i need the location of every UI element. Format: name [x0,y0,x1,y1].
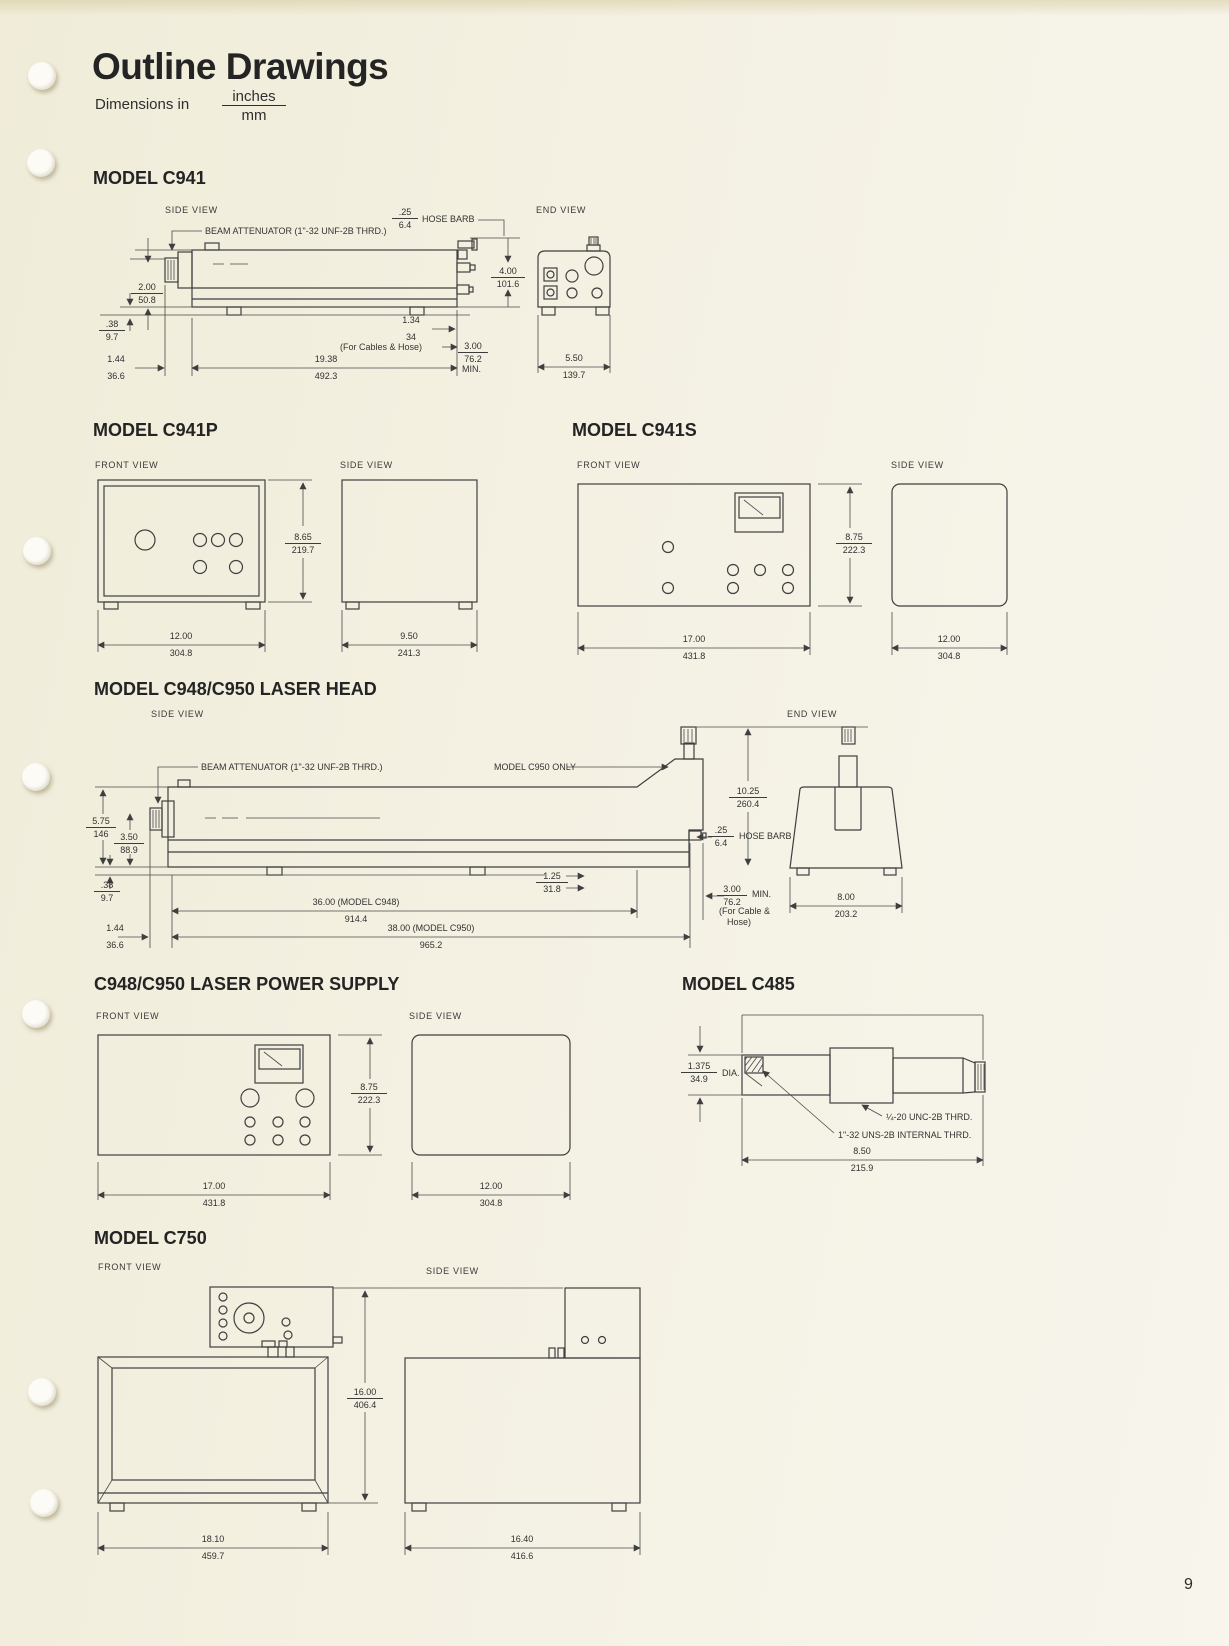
dim-mm: 431.8 [671,648,717,662]
c941-dim-end-width: 5.50 139.7 [554,353,594,381]
c750-dim-depth: 16.40 416.6 [500,1534,544,1562]
c750-heading: MODEL C750 [94,1228,207,1249]
c948-beam-attenuator-label: BEAM ATTENUATOR (1"-32 UNF-2B THRD.) [201,762,383,772]
c485-thread-1-label: ¼-20 UNC-2B THRD. [886,1112,972,1122]
c750-front-art [98,1287,563,1555]
c948-ps-dim-height: 8.75 222.3 [351,1082,387,1106]
c941s-dim-height: 8.75 222.3 [836,532,872,556]
c948-dim-length-c948: 36.00 (MODEL C948) 914.4 [295,897,417,925]
c485-heading: MODEL C485 [682,974,795,995]
c948-ps-dim-width: 17.00 431.8 [191,1181,237,1209]
c485-dim-length: 8.50 215.9 [840,1146,884,1174]
catalog-page: Outline Drawings Dimensions in inches mm… [0,0,1229,1646]
dimensions-in-label: Dimensions in [95,96,189,113]
dim-inches: 1.25 [536,871,568,883]
c485-thread-2-label: 1"-32 UNS-2B INTERNAL THRD. [838,1130,971,1140]
dim-inches: 36.00 (MODEL C948) [295,897,417,911]
dim-inches: 12.00 [926,634,972,648]
c941-dim-foot: .38 9.7 [99,319,125,343]
dim-inches: .38 [99,319,125,331]
dim-inches: 8.75 [836,532,872,544]
dim-mm: 31.8 [536,883,568,895]
dim-mm: 304.8 [926,648,972,662]
dim-mm: 36.6 [99,368,133,382]
c948-side-view-label: SIDE VIEW [151,709,204,719]
c941-side-view-art [100,220,520,376]
c941p-heading: MODEL C941P [93,420,218,441]
c948-dim-rear: 1.25 31.8 [536,871,568,895]
c941s-front-view-label: FRONT VIEW [577,460,640,470]
c948-dim-clearance: 3.00 76.2 [717,884,747,908]
c948-ps-art [98,1035,570,1200]
dim-inches: 10.25 [729,786,767,798]
c941p-dim-height: 8.65 219.7 [285,532,321,556]
c941-dim-end-height: 4.00 101.6 [491,266,525,290]
c750-front-view-label: FRONT VIEW [98,1262,161,1272]
dim-mm: 88.9 [114,844,144,856]
c941-dim-rear: 1.34 34 [393,315,429,343]
dim-mm: 965.2 [370,937,492,951]
page-number: 9 [1184,1576,1193,1594]
dim-inches: .25 [392,207,418,219]
c948-cable-note-1: (For Cable & [719,906,770,916]
c948-hose-barb-label: HOSE BARB [739,831,792,841]
units-inches: inches [222,88,286,106]
c941-dim-hose-barb: .25 6.4 [392,207,418,231]
dim-inches: 18.10 [191,1534,235,1548]
c941p-art [98,480,477,652]
c948-dim-end-width: 8.00 203.2 [824,892,868,920]
c941-cables-note: (For Cables & Hose) [340,342,422,352]
c948-dim-nose: 1.44 36.6 [98,923,132,951]
c948-end-view-label: END VIEW [787,709,837,719]
dim-inches: 4.00 [491,266,525,278]
c941-dim-clearance: 3.00 76.2 [458,341,488,365]
dim-mm: 459.7 [191,1548,235,1562]
c948-dim-length-c950: 38.00 (MODEL C950) 965.2 [370,923,492,951]
c941p-front-view-label: FRONT VIEW [95,460,158,470]
dim-inches: 8.65 [285,532,321,544]
dim-inches: 1.44 [98,923,132,937]
c948-dim-knob-height: 10.25 260.4 [729,786,767,810]
dim-mm: 6.4 [392,219,418,231]
dim-mm: 260.4 [729,798,767,810]
dim-inches: 19.38 [298,354,354,368]
dim-mm: 146 [86,828,116,840]
dim-mm: 203.2 [824,906,868,920]
dim-inches: 1.44 [99,354,133,368]
c750-side-view-label: SIDE VIEW [426,1266,479,1276]
c948-dim-body-height: 3.50 88.9 [114,832,144,856]
c941-heading: MODEL C941 [93,168,206,189]
c948-dim-foot: .38 9.7 [94,880,120,904]
c941-beam-attenuator-label: BEAM ATTENUATOR (1"-32 UNF-2B THRD.) [205,226,387,236]
c485-art [688,1015,985,1166]
c948-dim-total-height: 5.75 146 [86,816,116,840]
c941-dim-length: 19.38 492.3 [298,354,354,382]
dim-mm: 304.8 [158,645,204,659]
c750-dim-width: 18.10 459.7 [191,1534,235,1562]
dim-mm: 492.3 [298,368,354,382]
dim-mm: 219.7 [285,544,321,556]
c941-dim-nose: 1.44 36.6 [99,354,133,382]
dim-inches: 1.34 [393,315,429,329]
c941p-side-view-label: SIDE VIEW [340,460,393,470]
c948-dim-hose-barb: .25 6.4 [708,825,734,849]
c950-only-label: MODEL C950 ONLY [494,762,576,772]
c941s-art [578,484,1007,655]
dim-mm: 50.8 [131,294,163,306]
dim-inches: 12.00 [468,1181,514,1195]
dim-inches: 3.50 [114,832,144,844]
dim-mm: 222.3 [836,544,872,556]
dim-inches: 9.50 [386,631,432,645]
dim-inches: 12.00 [158,631,204,645]
page-title: Outline Drawings [92,46,388,88]
dim-mm: 36.6 [98,937,132,951]
dim-inches: 3.00 [458,341,488,353]
dim-mm: 215.9 [840,1160,884,1174]
c941s-heading: MODEL C941S [572,420,697,441]
c941p-dim-depth: 9.50 241.3 [386,631,432,659]
c948-min-note: MIN. [752,889,771,899]
c485-dim-dia: 1.375 34.9 [681,1061,717,1085]
dim-inches: .38 [94,880,120,892]
units-fraction: inches mm [222,88,286,124]
c948-ps-side-view-label: SIDE VIEW [409,1011,462,1021]
units-mm: mm [222,106,286,124]
c948-ps-dim-depth: 12.00 304.8 [468,1181,514,1209]
c948-ps-heading: C948/C950 LASER POWER SUPPLY [94,974,399,995]
c941s-dim-width: 17.00 431.8 [671,634,717,662]
dim-inches: 16.00 [347,1387,383,1399]
dim-mm: 9.7 [99,331,125,343]
dim-inches: 2.00 [131,282,163,294]
c941-side-view-label: SIDE VIEW [165,205,218,215]
dim-inches: 8.50 [840,1146,884,1160]
c485-dia-note: DIA. [722,1068,740,1078]
c750-side-art [405,1288,640,1555]
c948-head-heading: MODEL C948/C950 LASER HEAD [94,679,377,700]
c948-cable-note-2: Hose) [727,917,751,927]
c941-min-note: MIN. [462,364,481,374]
dim-mm: 304.8 [468,1195,514,1209]
dim-inches: 17.00 [191,1181,237,1195]
dim-inches: 38.00 (MODEL C950) [370,923,492,937]
dim-inches: 8.00 [824,892,868,906]
dim-inches: 16.40 [500,1534,544,1548]
dim-mm: 431.8 [191,1195,237,1209]
line-art [0,0,1229,1646]
dim-mm: 6.4 [708,837,734,849]
c750-dim-height: 16.00 406.4 [347,1387,383,1411]
dim-inches: 5.75 [86,816,116,828]
c941-dim-height: 2.00 50.8 [131,282,163,306]
dim-inches: .25 [708,825,734,837]
dim-mm: 101.6 [491,278,525,290]
c941-end-view-label: END VIEW [536,205,586,215]
dim-inches: 1.375 [681,1061,717,1073]
dim-inches: 8.75 [351,1082,387,1094]
dim-mm: 416.6 [500,1548,544,1562]
c941s-side-view-label: SIDE VIEW [891,460,944,470]
dim-mm: 34 [393,329,429,343]
dim-mm: 139.7 [554,367,594,381]
c941p-dim-width: 12.00 304.8 [158,631,204,659]
dim-mm: 34.9 [681,1073,717,1085]
c941s-dim-depth: 12.00 304.8 [926,634,972,662]
dim-mm: 406.4 [347,1399,383,1411]
c941-hose-barb-label: HOSE BARB [422,214,475,224]
dim-mm: 9.7 [94,892,120,904]
dim-inches: 3.00 [717,884,747,896]
c948-ps-front-view-label: FRONT VIEW [96,1011,159,1021]
dim-inches: 17.00 [671,634,717,648]
dim-mm: 241.3 [386,645,432,659]
dim-mm: 222.3 [351,1094,387,1106]
dim-inches: 5.50 [554,353,594,367]
